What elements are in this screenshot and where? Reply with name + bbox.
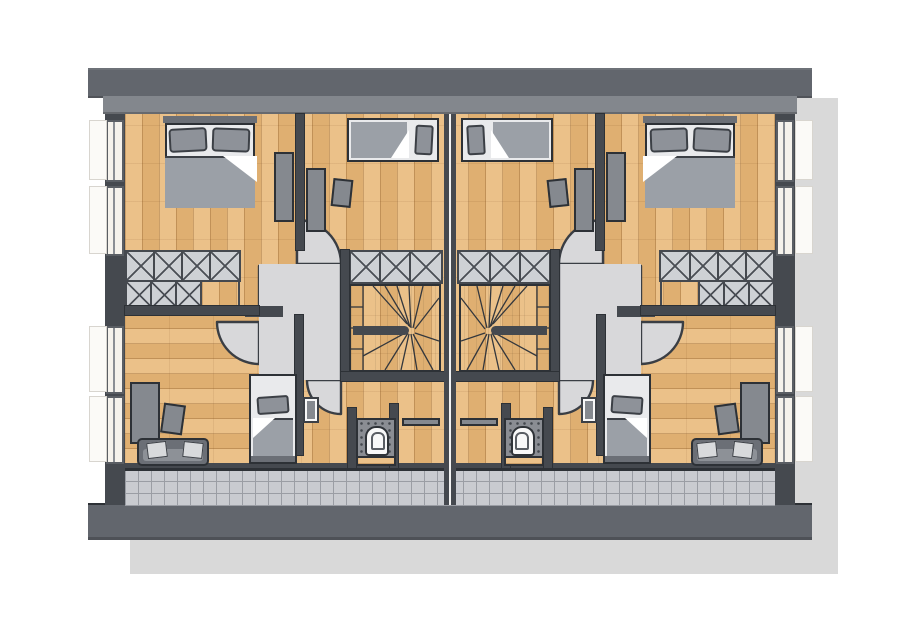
desk <box>574 168 594 232</box>
wardrobe <box>130 382 160 444</box>
stair-rail-wall <box>491 326 547 335</box>
sofa-cushion <box>146 441 168 459</box>
winder-staircase <box>459 284 551 372</box>
winder-staircase <box>349 284 441 372</box>
single-bed <box>347 118 439 162</box>
single-bed-vertical <box>249 374 297 464</box>
wooden-bench <box>504 456 544 466</box>
wc-wall <box>348 408 356 468</box>
stair-wall <box>551 250 559 381</box>
unit-right <box>456 114 775 468</box>
partition-wall <box>296 114 304 250</box>
closet-x-icon <box>409 250 443 284</box>
closet-x-icon <box>379 250 413 284</box>
room-wall <box>641 306 775 315</box>
bed-footboard <box>251 456 295 462</box>
single-bed-vertical <box>603 374 651 464</box>
window-icon <box>106 396 124 464</box>
top-exterior-wall-outer <box>88 68 812 98</box>
desk <box>274 152 294 222</box>
window-sill <box>89 120 107 180</box>
closet-x-icon <box>209 250 241 282</box>
double-bed <box>643 116 737 208</box>
pillow <box>212 127 251 152</box>
sofa-cushion <box>732 441 754 459</box>
closet-x-icon <box>349 250 383 284</box>
closet-x-icon <box>687 250 719 282</box>
desk <box>606 152 626 222</box>
stair-rail-wall <box>353 326 409 335</box>
bed-headboard <box>643 116 737 123</box>
pillow <box>610 395 643 415</box>
closet-x-icon <box>457 250 491 284</box>
window-icon <box>106 120 124 182</box>
desk-chair <box>160 403 186 436</box>
closet-x-icon <box>659 250 691 282</box>
party-wall <box>444 114 456 505</box>
window-sill <box>89 326 107 392</box>
wooden-bench <box>356 456 396 466</box>
window-sill <box>89 186 107 254</box>
bed-footboard <box>605 456 649 462</box>
desk <box>306 168 326 232</box>
wardrobe <box>740 382 770 444</box>
wc-wall <box>544 408 552 468</box>
top-exterior-wall-inner <box>103 96 797 114</box>
radiator-shelf <box>402 418 440 426</box>
toilet-icon <box>365 426 389 456</box>
window-icon <box>776 326 794 394</box>
left-exterior-wall <box>105 114 125 505</box>
window-icon <box>776 120 794 182</box>
sofa <box>691 438 763 466</box>
double-bed <box>163 116 257 208</box>
window-icon <box>776 396 794 464</box>
window-icon <box>776 186 794 256</box>
window-icon <box>106 326 124 394</box>
right-exterior-wall <box>775 114 795 505</box>
sofa-cushion <box>696 441 718 459</box>
window-sill <box>795 186 813 254</box>
pillow <box>256 395 289 415</box>
stair-wall <box>341 372 444 381</box>
stair-wall <box>341 250 349 381</box>
sofa <box>137 438 209 466</box>
window-sill <box>795 326 813 392</box>
window-sill <box>89 396 107 462</box>
desk-chair <box>331 178 354 208</box>
floor-plan <box>0 0 900 620</box>
pillow <box>414 125 434 156</box>
window-icon <box>106 186 124 256</box>
bottom-exterior-wall <box>88 503 812 540</box>
pillow <box>692 127 731 153</box>
partition-wall <box>596 114 604 250</box>
sofa-cushion <box>182 441 204 459</box>
desk-chair <box>714 403 740 436</box>
pillow <box>168 127 207 153</box>
closet-x-icon <box>487 250 521 284</box>
single-bed <box>461 118 553 162</box>
window-sill <box>795 120 813 180</box>
stair-wall <box>456 372 559 381</box>
pillow <box>650 127 689 152</box>
open-door-leaf <box>303 397 319 423</box>
bed-headboard <box>163 116 257 123</box>
unit-left <box>125 114 444 468</box>
room-wall <box>125 306 259 315</box>
closet-x-icon <box>517 250 551 284</box>
open-door-leaf <box>581 397 597 423</box>
radiator-shelf <box>460 418 498 426</box>
desk-chair <box>547 178 570 208</box>
closet-x-icon <box>743 250 775 282</box>
toilet-icon <box>511 426 535 456</box>
closet-x-icon <box>715 250 747 282</box>
window-sill <box>795 396 813 462</box>
pillow <box>466 125 486 156</box>
